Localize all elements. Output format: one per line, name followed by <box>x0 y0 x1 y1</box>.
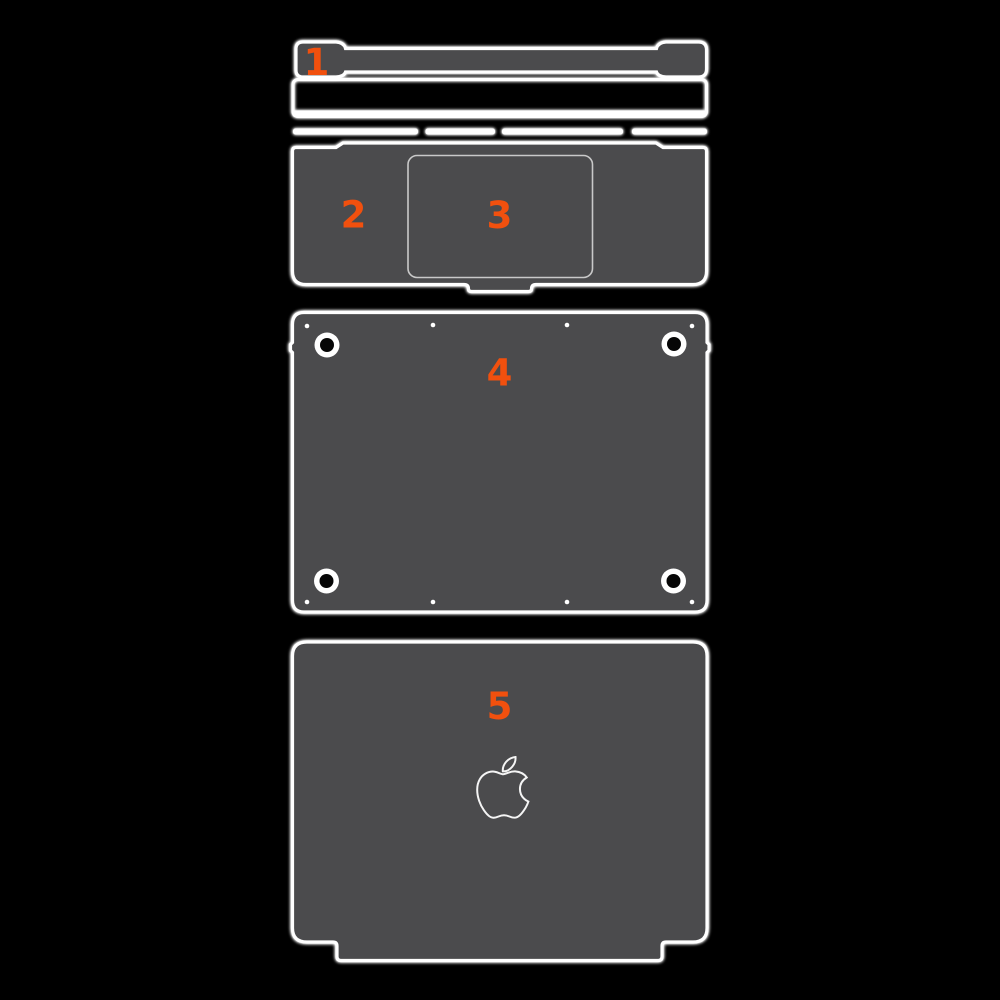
screw-hole-dot <box>305 600 310 605</box>
hinge-strip-segment <box>293 129 418 135</box>
hinge-strip-bar <box>293 111 707 118</box>
diagram-canvas: 1 2 3 4 5 <box>0 0 1000 1000</box>
piece-label-4: 4 <box>487 352 514 395</box>
foot-cutout <box>315 333 340 358</box>
screw-hole-dot <box>565 600 570 605</box>
piece-label-2: 2 <box>341 194 368 237</box>
piece-label-1: 1 <box>304 41 331 84</box>
skin-template-diagram: 1 2 3 4 5 <box>0 0 1000 1000</box>
hinge-cover-shape <box>296 42 707 77</box>
hinge-strip-segment <box>426 129 496 135</box>
foot-cutout <box>314 569 339 594</box>
foot-cutout <box>661 569 686 594</box>
screw-hole-dot <box>305 324 310 329</box>
screw-hole-dot <box>431 600 436 605</box>
hinge-strip-segment <box>502 129 623 135</box>
hinge-strips-group <box>293 80 708 135</box>
piece-hinge-cover <box>296 42 707 77</box>
hinge-strip-segment <box>632 129 707 135</box>
piece-label-3: 3 <box>487 194 514 237</box>
foot-cutout <box>662 332 687 357</box>
screw-hole-dot <box>431 323 436 328</box>
screw-hole-dot <box>690 600 695 605</box>
screw-hole-dot <box>690 324 695 329</box>
screw-hole-dot <box>565 323 570 328</box>
piece-label-5: 5 <box>487 685 514 728</box>
